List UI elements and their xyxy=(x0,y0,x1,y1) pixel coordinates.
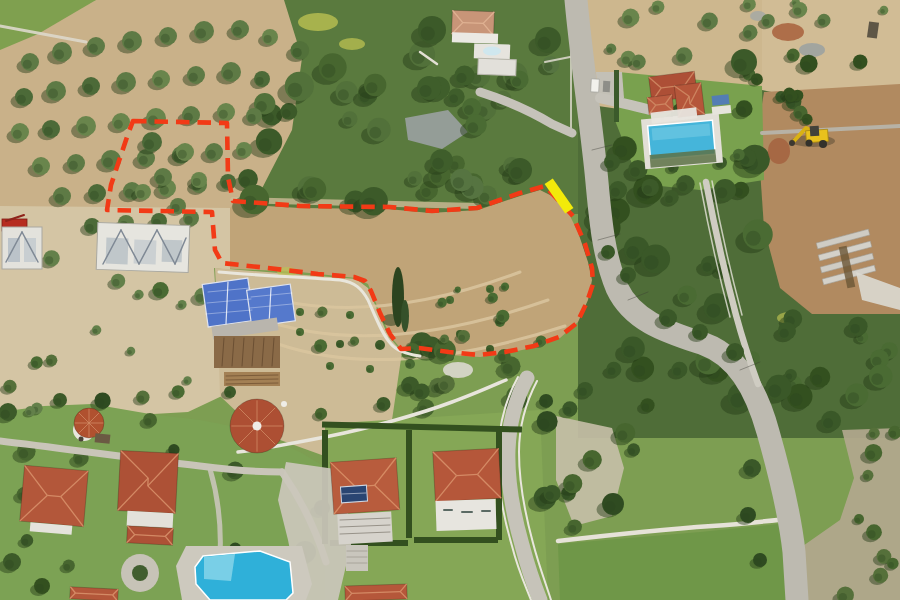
tree-texture xyxy=(415,389,423,397)
pergola-wood xyxy=(95,433,111,444)
patio-bush xyxy=(132,565,148,581)
tree-texture xyxy=(137,190,145,198)
tree-texture xyxy=(44,127,53,136)
tree-texture xyxy=(238,148,246,156)
tree-texture xyxy=(219,110,228,119)
tree-texture xyxy=(93,329,98,334)
tree-texture xyxy=(467,122,478,133)
tree-texture xyxy=(321,64,335,78)
tree-texture xyxy=(344,117,352,125)
tree-texture xyxy=(499,354,506,361)
tree-texture xyxy=(643,185,652,194)
tree-texture xyxy=(734,59,747,72)
villa-annex xyxy=(478,58,517,75)
tree-texture xyxy=(746,231,761,246)
tree-texture xyxy=(737,107,745,115)
tree-texture xyxy=(786,94,792,100)
van xyxy=(591,79,600,92)
tree-texture xyxy=(315,344,322,351)
windmill-door xyxy=(79,437,84,442)
tree-texture xyxy=(13,130,22,139)
aerial-photo xyxy=(0,0,900,600)
tree-texture xyxy=(154,288,162,296)
tree-texture xyxy=(642,403,649,410)
tree-texture xyxy=(420,85,432,97)
tree-texture xyxy=(47,359,53,365)
hedge xyxy=(614,70,619,122)
tree-texture xyxy=(5,385,12,392)
tree-texture xyxy=(565,481,575,491)
tree-texture xyxy=(624,15,633,24)
tree-texture xyxy=(409,176,416,183)
tree-texture xyxy=(622,56,630,64)
tree-texture xyxy=(69,161,78,170)
tree-texture xyxy=(622,273,630,281)
tree-texture xyxy=(864,474,869,479)
tree-texture xyxy=(378,402,385,409)
tree-texture xyxy=(248,114,256,122)
tree-texture xyxy=(866,451,875,460)
tree-texture xyxy=(679,293,689,303)
tree-texture xyxy=(644,255,658,269)
tree-texture xyxy=(653,5,659,11)
tree-texture xyxy=(137,396,144,403)
tree-texture xyxy=(498,315,505,322)
tree-texture xyxy=(888,562,894,568)
tree-texture xyxy=(812,375,822,385)
tree-texture xyxy=(144,140,154,150)
tree-texture xyxy=(154,77,163,86)
excavator-wheel xyxy=(819,140,827,148)
house-b-deck xyxy=(127,511,174,528)
tree-texture xyxy=(282,109,290,117)
tree-texture xyxy=(539,419,550,430)
tree-texture xyxy=(823,418,833,428)
tree-texture xyxy=(611,188,620,197)
tree-texture xyxy=(369,127,381,139)
pavilion-cupola xyxy=(253,422,262,431)
house-c-deck xyxy=(337,512,392,545)
tree-texture xyxy=(512,77,521,86)
tree-texture xyxy=(438,301,443,306)
tree-texture xyxy=(441,338,445,342)
tree-texture xyxy=(351,340,356,345)
tree-texture xyxy=(225,391,231,397)
tree-texture xyxy=(1,410,10,419)
flower-patch xyxy=(298,13,338,31)
tree-texture xyxy=(854,60,861,67)
pergola-blue xyxy=(712,94,730,106)
tree-texture xyxy=(634,365,645,376)
tree-texture xyxy=(26,410,31,415)
tree-texture xyxy=(706,304,720,318)
excavator-cab xyxy=(810,126,820,137)
tree-texture xyxy=(128,350,132,354)
tree-texture xyxy=(240,176,250,186)
tree-texture xyxy=(487,288,491,292)
tree-texture xyxy=(233,27,242,36)
tree-texture xyxy=(135,293,140,298)
tree-texture xyxy=(449,95,457,103)
tree-texture xyxy=(64,564,70,570)
tree-texture xyxy=(96,399,104,407)
tree-texture xyxy=(292,48,301,57)
tree-texture xyxy=(455,289,458,292)
tree-texture xyxy=(604,501,615,512)
tree-texture xyxy=(538,37,551,50)
tree-texture xyxy=(156,175,165,184)
tree-texture xyxy=(606,160,614,168)
tree-texture xyxy=(305,186,317,198)
tree-texture xyxy=(403,383,412,392)
aerial-photo-canvas xyxy=(0,0,900,600)
tree-texture xyxy=(502,286,506,290)
house-d-walls xyxy=(435,499,496,531)
tree-texture xyxy=(48,89,58,99)
tree-texture xyxy=(880,9,884,13)
tree-texture xyxy=(630,167,640,177)
tree-texture xyxy=(54,398,61,405)
tree-texture xyxy=(144,418,151,425)
tree-texture xyxy=(5,560,14,569)
tree-texture xyxy=(763,19,770,26)
tree-texture xyxy=(55,194,64,203)
tree-texture xyxy=(607,47,612,52)
tree-texture xyxy=(768,385,781,398)
tree-texture xyxy=(185,216,193,224)
tree-texture xyxy=(855,518,860,523)
excavator-bucket xyxy=(789,140,795,146)
tree-texture xyxy=(447,299,451,303)
tree-texture xyxy=(193,178,201,186)
tree-texture xyxy=(703,19,711,27)
tree-texture xyxy=(633,60,640,67)
tree-texture xyxy=(673,368,681,376)
tree-texture xyxy=(22,539,28,545)
tree-texture xyxy=(366,82,377,93)
tree-texture xyxy=(89,44,98,53)
tree-texture xyxy=(112,279,119,286)
tree-texture xyxy=(440,382,448,390)
tree-texture xyxy=(502,364,512,374)
tree-texture xyxy=(744,30,752,38)
pool-steps xyxy=(204,554,235,581)
red-dirt-patch xyxy=(768,138,790,164)
tree-texture xyxy=(868,530,876,538)
tree-texture xyxy=(628,448,634,454)
tree-texture xyxy=(790,393,803,406)
tree-texture xyxy=(602,250,609,257)
tree-texture xyxy=(34,164,43,173)
tree-texture xyxy=(421,27,435,41)
tree-texture xyxy=(745,466,754,475)
tree-texture xyxy=(19,449,28,458)
house-c-steps xyxy=(346,545,368,571)
tree-texture xyxy=(615,145,627,157)
tree-texture xyxy=(878,555,885,562)
frame-shadow xyxy=(8,238,20,262)
satellite-dish xyxy=(281,401,287,407)
car xyxy=(603,81,611,92)
tree-texture xyxy=(752,78,758,84)
tree-texture xyxy=(327,365,331,369)
tree-texture xyxy=(45,256,53,264)
tree-texture xyxy=(459,335,465,341)
tree-texture xyxy=(626,246,639,259)
tree-texture xyxy=(297,311,301,315)
tree-texture xyxy=(489,296,494,301)
tree-texture xyxy=(84,84,93,93)
tree-texture xyxy=(54,50,64,60)
tree-texture xyxy=(86,224,94,232)
tree-texture xyxy=(819,19,826,26)
tree-texture xyxy=(90,191,99,200)
excavator-wheel xyxy=(806,140,813,147)
tree-texture xyxy=(694,330,702,338)
tree-texture xyxy=(367,368,371,372)
tree-texture xyxy=(456,73,466,83)
tree-texture xyxy=(617,430,627,440)
tree-texture xyxy=(889,431,896,438)
tree-texture xyxy=(32,361,38,367)
tree-texture xyxy=(78,124,88,134)
tree-texture xyxy=(23,60,32,69)
tree-texture xyxy=(584,457,594,467)
tree-texture xyxy=(780,329,789,338)
hedge xyxy=(406,430,412,538)
tree-texture xyxy=(795,111,802,118)
hedge xyxy=(414,537,498,543)
tree-texture xyxy=(788,53,795,60)
tree-texture xyxy=(256,77,264,85)
tree-texture xyxy=(161,34,170,43)
tree-texture xyxy=(510,167,522,179)
tree-texture xyxy=(139,156,148,165)
tree-texture xyxy=(124,39,134,49)
frame-shadow xyxy=(24,238,36,262)
tree-texture xyxy=(118,80,128,90)
tree-texture xyxy=(178,150,187,159)
tree-texture xyxy=(661,316,670,325)
tree-texture xyxy=(347,314,351,318)
tree-texture xyxy=(874,573,882,581)
tree-texture xyxy=(734,153,740,159)
tree-texture xyxy=(196,294,204,302)
tree-texture xyxy=(189,73,198,82)
villa-terrace xyxy=(452,32,498,44)
tree-texture xyxy=(803,118,808,123)
tree-texture xyxy=(178,303,183,308)
tree-texture xyxy=(184,379,188,383)
tree-texture xyxy=(728,350,737,359)
villa-plunge-pool xyxy=(483,47,501,56)
tree-texture xyxy=(318,310,323,315)
tree-texture xyxy=(207,150,216,159)
tree-texture xyxy=(297,331,301,335)
tree-texture xyxy=(794,8,801,15)
rock-outcrop xyxy=(799,43,825,57)
tree-texture xyxy=(702,263,711,272)
tree-texture xyxy=(173,390,180,397)
tree-texture xyxy=(376,344,381,349)
tree-texture xyxy=(17,95,26,104)
tree-texture xyxy=(742,513,750,521)
villa-roof-ridge xyxy=(463,23,483,24)
tree-texture xyxy=(406,363,411,368)
tree-texture xyxy=(744,3,751,10)
tree-texture xyxy=(848,392,859,403)
flower-patch xyxy=(339,38,365,50)
tree-texture xyxy=(103,158,113,168)
tree-texture xyxy=(337,343,341,347)
cypress-tree xyxy=(401,300,409,332)
tree-texture xyxy=(114,120,123,129)
tree-texture xyxy=(564,407,572,415)
tree-texture xyxy=(338,89,349,100)
tree-texture xyxy=(579,388,587,396)
tree-texture xyxy=(754,558,761,565)
frame-shadow xyxy=(106,238,129,265)
tree-texture xyxy=(678,182,687,191)
tree-texture xyxy=(677,53,685,61)
tree-texture xyxy=(264,35,272,43)
tree-texture xyxy=(464,105,474,115)
tree-texture xyxy=(871,373,883,385)
tree-texture xyxy=(75,456,83,464)
tree-texture xyxy=(544,62,553,71)
tree-texture xyxy=(623,346,635,358)
tree-texture xyxy=(569,525,576,532)
tree-texture xyxy=(422,188,431,197)
tree-texture xyxy=(665,196,672,203)
tree-texture xyxy=(540,399,547,406)
tree-texture xyxy=(850,324,860,334)
tree-texture xyxy=(716,187,727,198)
tree-texture xyxy=(316,412,322,418)
tree-texture xyxy=(259,138,272,151)
tree-texture xyxy=(36,584,44,592)
tree-texture xyxy=(196,29,206,39)
tree-texture xyxy=(870,432,876,438)
tree-texture xyxy=(432,158,443,169)
tree-texture xyxy=(453,177,464,188)
tree-texture xyxy=(698,358,711,371)
tree-texture xyxy=(288,83,303,98)
tree-texture xyxy=(802,61,811,70)
tree-texture xyxy=(608,367,616,375)
red-dirt-patch xyxy=(772,23,804,41)
tree-texture xyxy=(223,70,233,80)
tree-texture xyxy=(545,491,553,499)
